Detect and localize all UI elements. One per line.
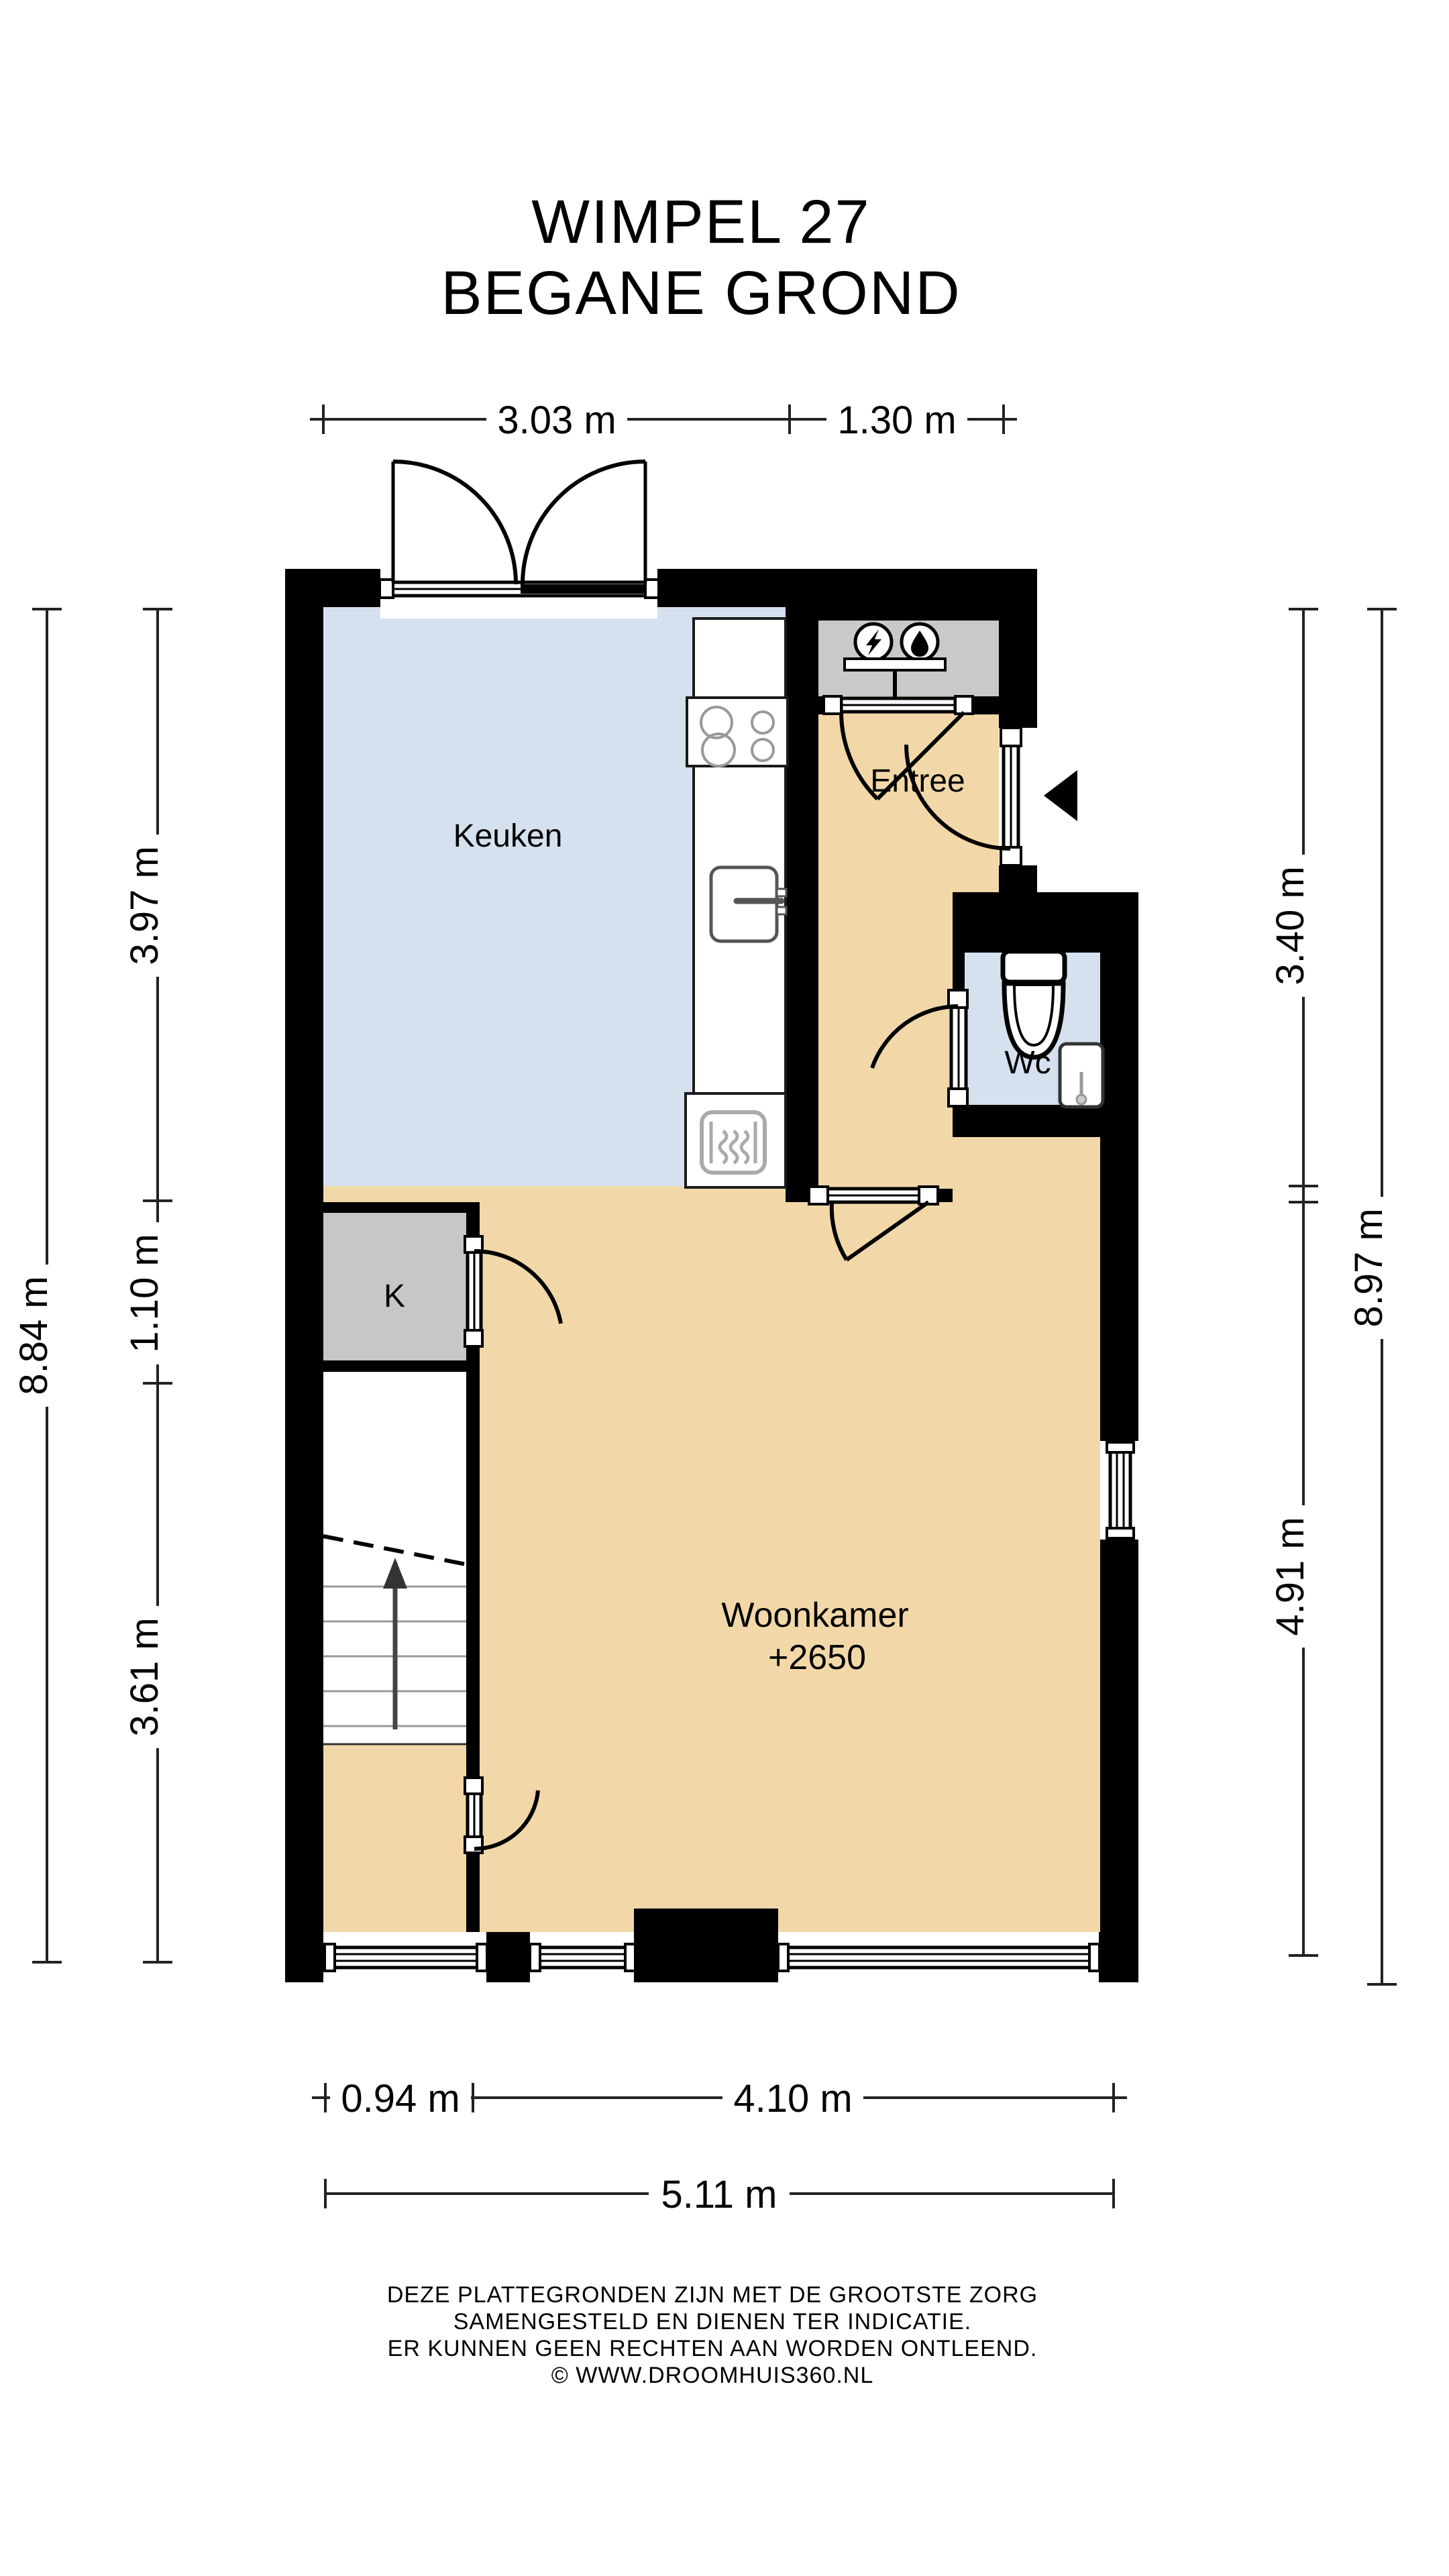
plan-title-line2: BEGANE GROND bbox=[441, 259, 961, 327]
wc-hand-basin bbox=[1060, 1044, 1103, 1107]
kitchen-sink bbox=[711, 867, 786, 941]
disclaimer-line1: DEZE PLATTEGRONDEN ZIJN MET DE GROOTSTE … bbox=[387, 2282, 1038, 2308]
disclaimer-line2: SAMENGESTELD EN DIENEN TER INDICATIE. bbox=[453, 2309, 972, 2334]
oven bbox=[686, 1093, 786, 1187]
dim-left-stairs: 3.61 m bbox=[123, 1617, 166, 1736]
dim-right-entry: 3.40 m bbox=[1269, 866, 1312, 985]
label-entry: Entree bbox=[870, 763, 965, 799]
plan-title-line1: WIMPEL 27 bbox=[531, 188, 870, 256]
toilet bbox=[1003, 951, 1065, 1057]
label-toilet: Wc bbox=[1004, 1045, 1051, 1081]
label-living: Woonkamer bbox=[721, 1596, 908, 1635]
entrance-arrow-icon bbox=[1044, 770, 1077, 821]
dim-right-living: 4.91 m bbox=[1269, 1517, 1312, 1635]
dim-bottom-hall: 0.94 m bbox=[341, 2077, 460, 2121]
dim-left-kitchen: 3.97 m bbox=[123, 846, 166, 965]
dim-bottom-total: 5.11 m bbox=[661, 2173, 777, 2216]
disclaimer-line3: ER KUNNEN GEEN RECHTEN AAN WORDEN ONTLEE… bbox=[388, 2336, 1038, 2361]
disclaimer-line4: © WWW.DROOMHUIS360.NL bbox=[551, 2363, 874, 2388]
label-kitchen: Keuken bbox=[453, 818, 563, 854]
label-living-level: +2650 bbox=[768, 1638, 866, 1677]
dim-left-closet: 1.10 m bbox=[123, 1234, 166, 1352]
dim-top-entry: 1.30 m bbox=[837, 398, 956, 442]
dim-left-total: 8.84 m bbox=[12, 1276, 56, 1395]
stove bbox=[687, 698, 788, 766]
window-hall-bottom bbox=[325, 1944, 487, 1971]
french-doors bbox=[380, 462, 659, 619]
label-closet: K bbox=[384, 1279, 405, 1314]
dim-right-total: 8.97 m bbox=[1347, 1208, 1391, 1327]
window-living-bottom-right bbox=[778, 1944, 1099, 1971]
dim-top-kitchen: 3.03 m bbox=[497, 398, 616, 442]
kitchen-counter bbox=[686, 619, 788, 1187]
floorplan-drawing: WIMPEL 27 BEGANE GROND bbox=[0, 0, 1449, 2576]
window-living-right bbox=[1100, 1441, 1138, 1540]
dim-bottom-living: 4.10 m bbox=[733, 2077, 852, 2121]
floorplan-page: WIMPEL 27 BEGANE GROND bbox=[0, 0, 1449, 2576]
window-living-bottom-left bbox=[530, 1944, 635, 1971]
